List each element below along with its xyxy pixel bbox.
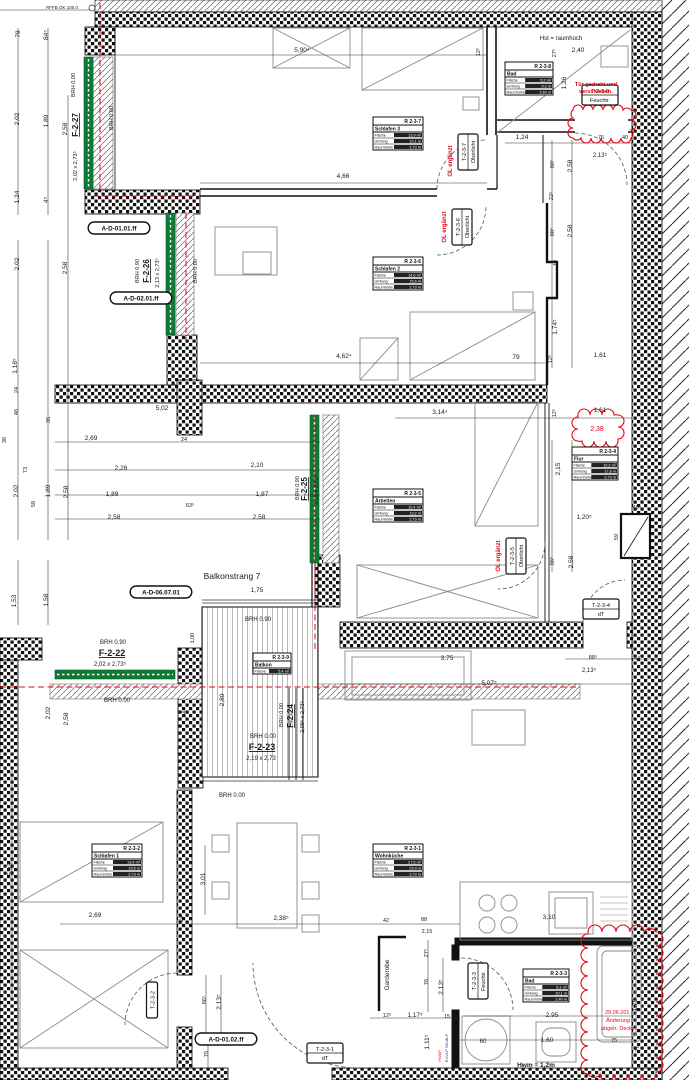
dim-label: 73 [23,467,29,473]
dim-label: 4,62⁴ [336,353,352,360]
dim-label: 1,75 [251,587,264,594]
wall-pillar [177,380,202,435]
dim-label: 2,02 x 2,73⁵ [94,661,127,668]
dim-label: 1,61 [594,407,607,414]
dim-label: 5,93⁴ [7,860,14,876]
room-value: 10,1 m [555,992,567,996]
dim-label: F-2-25 [300,477,309,501]
dim-label: BRH 0.00 [71,73,77,97]
door-tag-t-2-3-7: T-2-3-7Oberlicht [458,134,478,170]
dim-label: RFFB OK 100.0 [46,5,79,10]
room-value: 5,4 m² [278,670,289,674]
dim-label: 88⁵ [549,228,556,236]
revision-label: verschieben. [579,89,613,95]
room-attr: Umfang [574,470,587,474]
room-value: 2,73 m [409,873,421,877]
reveal-f226 [176,213,194,335]
room-attr: Fläche [375,506,386,510]
chair [212,835,229,852]
bath-bottom-left-jamb-b [452,1010,459,1068]
dim-label: 12⁵ [383,1012,391,1019]
chair [302,882,319,899]
dim-label: 1,18⁵ [12,358,19,374]
wall-below-f226 [167,335,197,387]
room-name: Arbeiten [375,498,395,504]
wardrobe-schlafen3 [362,28,483,90]
hob-burner [479,917,495,933]
revision-label: HWAP [437,1050,442,1062]
dim-label: 86⁵ [549,557,556,565]
room-attr: Raumhöhe [525,998,544,1002]
dim-label: 24 [179,916,185,922]
bath-bottom-left-jamb-a [452,945,459,960]
room-attr: Fläche [375,274,386,278]
room-value: 5,2 m² [540,79,551,83]
dim-label: 75 [204,1051,210,1057]
door-tag-line: T-2-3-2 [151,991,157,1009]
room-attr: Umfang [507,85,520,89]
room-id: R 2-3-1 [404,846,421,852]
room-value: 2,73 m [128,873,140,877]
chair [302,835,319,852]
callout-a-d-02.01.ff: A-D-02.01.ff [110,292,172,304]
dim-label: Hst = raumhoch [540,36,583,42]
dim-label: 2,58 [567,159,574,172]
dining-table [237,823,297,928]
callout-a-d-01.01.ff: A-D-01.01.ff [88,222,150,234]
room-attr: Raumhöhe [574,476,593,480]
dim-label: 15 [444,1014,450,1020]
dim-label: 1,89 [45,484,52,497]
wall-bedroom1-lower [177,1027,192,1068]
room-value: 27,5 m² [408,861,422,865]
room-attr: Fläche [375,861,386,865]
room-value: 10,2 m² [603,464,617,468]
wall-flur [545,403,549,622]
room-name: Flur [574,456,583,462]
dim-label: 24 [14,387,20,393]
room-attr: Raumhöhe [507,91,526,95]
bath-top-left-wall [487,27,496,135]
dim-label: 2,08⁵ x 2,73⁵ [299,701,306,733]
dim-label: 88⁵ [589,654,597,661]
door-tag-line: T-2-3-5 [510,547,516,565]
room-attr: Fläche [94,861,105,865]
revision-label: OL ergänzt [442,211,448,242]
room-table-r2-3-5: R 2-3-5ArbeitenFläche10,4 m²Umfang13,2 m… [373,489,423,522]
dim-label: 1,60 [541,1037,554,1044]
room-attr: Umfang [375,140,388,144]
bath-top-bottom-wall [497,120,632,132]
dim-label: 2,15 [555,462,562,475]
room-value: 15,0 m [128,867,140,871]
wall-livingroom-top [340,622,583,648]
room-attr: Raumhöhe [375,518,394,522]
room-table-r2-3-9: R 2-3-9BalkonFläche5,4 m² [253,653,291,674]
dim-label: Hwm = 1,2m [517,1062,555,1069]
revision-label: abgeh. Decke [601,1026,635,1032]
dim-label: 1,74⁵ [552,319,559,335]
sideboard-schlafen2 [360,338,398,380]
dim-label: 19 [553,260,559,266]
dim-label: 2,58 [63,485,70,498]
wall-bottom-left [0,1068,228,1080]
dim-chains-right [505,140,632,572]
callout-label: A-D-06.07.01 [142,589,180,596]
callout-a-d-01.02.ff: A-D-01.02.ff [195,1033,257,1045]
chair [212,882,229,899]
door-tag-line: Oberlicht [519,544,525,567]
dim-label: 2,58 [568,555,575,568]
door-tag-line: Oberlicht [465,215,471,238]
wall-below-f227 [85,190,200,214]
dim-label: 4⁵ [43,197,50,204]
bath-bottom-top-wall [455,938,632,945]
room-id: R 2-3-8 [534,64,551,70]
room-value: 14,6 m² [408,274,422,278]
room-value: 10,4 m² [408,506,422,510]
bathtub-inner [602,951,636,1037]
dim-label: 36 [2,437,8,443]
wall-left-corner [0,638,42,660]
chair [302,915,319,932]
dim-label: 2,69 [89,912,102,919]
room-table-r2-3-7: R 2-3-7Schlafen 3Fläche13,9 m²Umfang15,1… [373,117,423,150]
dim-label: F-2-27 [71,113,80,137]
bed-schlafen2 [410,312,535,380]
room-attr: Umfang [375,280,388,284]
door-tag-line: T-2-3-7 [462,143,468,161]
room-table-r2-3-3: R 2-3-3BadFläche6,1 m²Umfang10,1 mRaumhö… [523,969,569,1002]
room-attr: Umfang [525,992,538,996]
revision-label: OL ergänzt [496,540,502,571]
dim-label: 42 [383,918,389,924]
dim-label: 2,13 x 2,73⁵ [154,258,161,288]
dim-label: 84⁵ [43,30,50,40]
dim-label: 88 [421,917,427,923]
door-tag-line: Feuchtr. [481,970,487,991]
dim-label: 2,95 [546,1012,559,1019]
dim-label: 2,02 x 2,73⁵ [313,475,320,505]
dim-label: 1,11⁵ [424,1034,431,1049]
room-attr: Umfang [375,512,388,516]
room-attr: Umfang [375,867,388,871]
nightstand-schlafen3 [463,97,479,110]
drainer [600,897,628,921]
dim-label: 88⁵ [549,160,556,168]
wardrobe-arbeiten [475,402,538,526]
wardrobe-schlafen1 [20,950,168,1048]
door-tag-t-2-3-3: T-2-3-3Feuchtr. [468,963,488,999]
dim-label: F-2-23 [249,742,276,752]
room-value: 15,6 m [409,280,421,284]
dim-label: 35 [46,417,52,423]
revision-label: Tür gedreht und [575,82,617,88]
dim-label: 12⁵ [547,355,554,363]
room-id: R 2-3-7 [404,119,421,125]
room-attr: Fläche [375,134,386,138]
dim-label: 5,02 [156,405,169,412]
room-attr: Raumhöhe [375,286,394,290]
dim-label: Balkonstrang 7 [204,571,261,581]
room-attr: Raumhöhe [94,873,113,877]
dim-label: F-2-26 [142,259,151,283]
sink-basin [555,898,587,928]
dim-label: 59 [614,534,620,540]
dim-label: 22⁵ [548,192,555,200]
dim-label: 2,13⁵ [216,994,223,1010]
room-name: Schlafen 1 [94,853,119,859]
dim-label: 1,89 [106,491,119,498]
top-insulation [95,0,662,12]
dim-label: 1,61 [594,352,607,359]
room-name: Balkon [255,662,272,668]
dim-label: 2,19 x 2,73 [246,756,276,762]
dim-label: 2,13⁵ [593,152,608,159]
dim-label: 5,07⁵ [481,680,497,687]
wall-bedroom1 [177,790,192,975]
door-tag-line: Feuchtr. [590,98,611,104]
door-tag-t-2-3-4: T-2-3-4dT [583,599,619,619]
dim-label: 60 [480,1039,487,1045]
dim-label: 1,24 [14,190,21,203]
dim-label: 2,69 [85,435,98,442]
dim-label: 2,40 [572,47,585,54]
room-value: 23,4 m [409,867,421,871]
room-id: R 2-3-2 [123,846,140,852]
door-tag-line: T-2-3-4 [592,603,610,609]
dim-label: F-2-22 [99,648,126,658]
dim-label: 75 [611,1038,617,1044]
door-tag-line: Oberlicht [471,140,477,163]
room-attr: Fläche [255,670,266,674]
dim-label: BRH 0.00 [109,106,115,130]
room-value: 13,2 m [409,512,421,516]
room-table-r2-3-8: R 2-3-8BadFläche5,2 m²Umfang9,3 mRaumhöh… [505,62,553,95]
door-tag-t-2-3-8: T-2-3-8Feuchtr. [582,85,618,105]
dim-label: 3,75 [441,655,454,662]
dim-label: 2,26 [115,465,128,472]
room-name: Schlafen 3 [375,126,400,132]
reveal-f225 [323,415,339,563]
dim-label: 2,02 [13,484,20,497]
dim-label: 2,13⁵ [582,667,597,674]
room-table-r2-3-6: R 2-3-6Schlafen 2Fläche14,6 m²Umfang15,6… [373,257,423,290]
room-value: 2,40 m [539,91,551,95]
dim-label: 5,90⁴ [294,47,310,54]
hob-burner [501,895,517,911]
dim-label: 12⁵ [551,409,558,417]
dim-label: BRH 0.00 [193,259,199,283]
dim-label: 27⁵ [551,49,558,57]
room-id: R 2-3-4 [599,449,616,455]
room-value: 17,8 m [604,470,616,474]
dim-label: BRH 0.00 [250,734,277,740]
room-id: R 2-3-6 [404,259,421,265]
wall-mid-long [55,385,547,403]
revision-label: 2,38 [590,426,604,433]
dim-label: EUVLP WLMLP [444,1033,449,1062]
floor-plan-drawing: R 2-3-7Schlafen 3Fläche13,9 m²Umfang15,1… [0,0,689,1080]
revision-label: Änderung [606,1017,630,1024]
dim-label: 2,58 [108,514,121,521]
room-table-r2-3-1: R 2-3-1WohnkücheFläche27,5 m²Umfang23,4 … [373,844,423,877]
wall-left [0,638,18,1080]
room-attr: Fläche [507,79,518,83]
callout-label: A-D-01.01.ff [102,225,138,232]
door-tag-line: T-2-3-3 [472,972,478,990]
dim-label: 24 [181,437,187,443]
room-value: 13,9 m² [408,134,422,138]
wall-livingroom-top-end [627,622,632,648]
dim-label: 1,53 [11,594,18,607]
room-attr: Raumhöhe [375,873,394,877]
room-value: 9,3 m [542,85,552,89]
dim-label: BRH 0.90 [100,640,127,646]
dim-label: 27 [635,1046,641,1052]
dim-label: 4,66 [337,173,350,180]
room-id: R 2-3-5 [404,491,421,497]
dim-label: 76 [424,979,430,985]
door-tag-t-2-3-2: T-2-3-2 [147,982,158,1018]
dim-label: 63⁵ [186,502,194,509]
dim-label: 1,20⁵ [576,514,592,521]
room-name: Schlafen 2 [375,266,400,272]
dim-label: 27⁵ [423,949,430,957]
dim-label: 79 [512,354,520,361]
hob-burner [501,917,517,933]
table-living [472,710,525,745]
room-value: 2,73 m [604,476,616,480]
dim-label: 3,10 [543,914,556,921]
dim-label: 78 [15,30,22,38]
desk-schlafen2 [215,227,277,275]
dim-label: 3,14⁴ [432,409,448,416]
dim-label: 40⁵ [633,504,641,511]
callout-a-d-06.07.01: A-D-06.07.01 [130,586,192,598]
callout-label: A-D-01.02.ff [209,1036,245,1043]
room-name: Bad [525,978,534,984]
dim-label: 2,10 [251,462,264,469]
dim-label: 2,58 [567,224,574,237]
door-tag-t-2-3-1: T-2-3-1dT [307,1043,343,1063]
dim-label: 2,38⁵ [273,915,289,922]
outside-right [662,0,689,1080]
dim-label: 1,87 [256,491,269,498]
room-attr: Fläche [525,986,536,990]
dim-label: F-2-24 [286,704,295,728]
room-id: R 2-3-9 [272,655,289,661]
hob-burner [479,895,495,911]
dim-label: 2,02 [14,257,21,270]
dim-label: 3,01 [200,872,207,885]
dim-label: 2,15 [422,929,433,935]
dim-label: 1,24 [516,134,529,141]
revision-label: 29.06.201. [605,1010,631,1016]
dim-label: Garderobe [384,959,391,990]
nightstand-schlafen2 [513,292,533,310]
sideboard-schlafen3 [273,28,350,68]
dim-label: BRH 0.00 [104,698,131,704]
dim-label: BRH 0.00 [279,703,285,727]
balcony [202,600,318,781]
dim-label: 2,58 [62,261,69,274]
dim-label: BRH 0.90 [135,259,141,283]
room-name: Wohnküche [375,853,403,859]
dim-label: 2,58 [63,712,70,725]
dim-label: 58 [31,501,37,507]
dim-label: 2,58 [62,122,69,135]
door-tag-t-2-3-5: T-2-3-5Oberlicht [506,538,526,574]
dim-label: 12⁵ [475,48,482,56]
dim-label: 1,58 [43,593,50,606]
dim-label: BRH 0.00 [219,793,246,799]
room-value: 15,1 m [409,140,421,144]
dim-label: 40 [622,135,628,141]
dim-label: 1,17⁵ [407,1012,423,1019]
room-attr: Fläche [574,464,585,468]
room-value: 13,4 m² [127,861,141,865]
dim-label: 1,70 [632,998,639,1011]
door-tag-line: T-2-3-1 [316,1047,334,1053]
room-value: 2,73 m [409,518,421,522]
room-value: 6,1 m² [556,986,567,990]
room-table-r2-3-2: R 2-3-2Schlafen 1Fläche13,4 m²Umfang15,0… [92,844,142,877]
dim-label: 86⁵ [201,996,208,1004]
callout-label: A-D-02.01.ff [124,295,160,302]
room-attr: Umfang [94,867,107,871]
dim-label: BRH 0.90 [245,617,272,623]
dim-label: 1,89 [43,114,50,127]
room-name: Bad [507,71,516,77]
wall-room1-room2 [200,189,497,196]
door-tag-t-2-3-6: T-2-3-6Oberlicht [452,209,472,245]
dim-label: 46 [14,409,20,415]
door-tag-line: T-2-3-6 [456,218,462,236]
floor-plan: R 2-3-7Schlafen 3Fläche13,9 m²Umfang15,1… [0,0,689,1080]
dim-label: 1,26 [561,76,568,89]
survey-point-marker [89,5,95,11]
dim-label: 44 [634,656,640,662]
dim-label: 2,02 [45,706,52,719]
dim-label: 2,02 [14,112,21,125]
dim-label: 24 [182,711,188,717]
room-table-r2-3-4: R 2-3-4FlurFläche10,2 m²Umfang17,8 mRaum… [572,447,618,480]
chair-schlafen2 [243,252,271,274]
dim-label: 2,80 [219,693,226,706]
room-value: 2,73 m [409,286,421,290]
room-attr: Raumhöhe [375,146,394,150]
room-id: R 2-3-3 [550,971,567,977]
wall-top [95,12,662,27]
dim-label: 2,58 [253,514,266,521]
door-tag-line: dT [598,612,605,618]
door-tag-line: dT [322,1056,329,1062]
revision-label: OL ergänzt [448,145,454,176]
dim-label: 76 [598,135,604,141]
dim-label: 1,00 [190,633,196,644]
room-value: 2,73 m [409,146,421,150]
dim-label: 2,13⁵ [438,979,445,995]
dim-label: 2,02 x 2,73⁵ [72,151,79,181]
room-value: 2,40 m [555,998,567,1002]
